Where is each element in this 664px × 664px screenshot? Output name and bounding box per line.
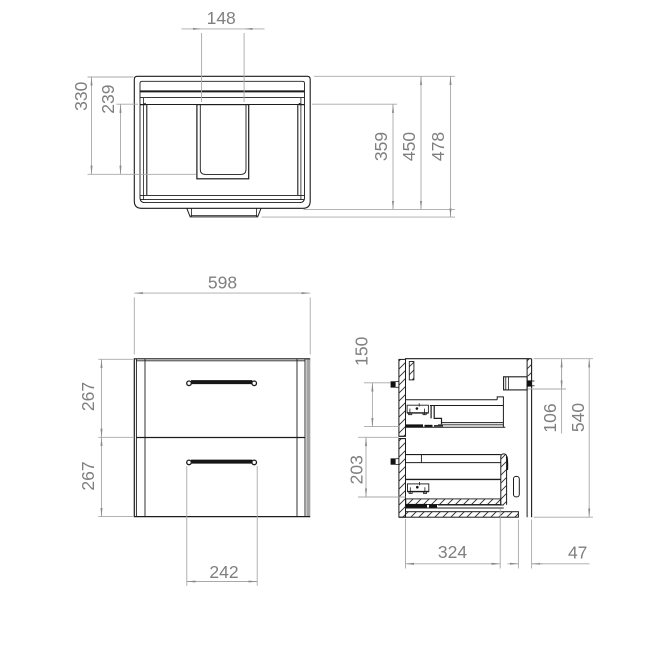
svg-text:203: 203 [346, 455, 366, 484]
svg-text:450: 450 [399, 132, 419, 161]
svg-text:267: 267 [78, 382, 98, 411]
svg-text:148: 148 [207, 8, 236, 28]
svg-text:106: 106 [540, 403, 560, 432]
svg-text:239: 239 [98, 84, 118, 113]
svg-text:330: 330 [71, 81, 91, 110]
svg-text:540: 540 [568, 403, 588, 432]
svg-text:47: 47 [568, 542, 587, 562]
svg-text:324: 324 [438, 542, 467, 562]
svg-text:598: 598 [208, 272, 237, 292]
svg-text:150: 150 [351, 336, 371, 365]
svg-text:267: 267 [78, 461, 98, 490]
svg-text:478: 478 [428, 132, 448, 161]
svg-text:242: 242 [209, 562, 238, 582]
svg-text:359: 359 [371, 132, 391, 161]
